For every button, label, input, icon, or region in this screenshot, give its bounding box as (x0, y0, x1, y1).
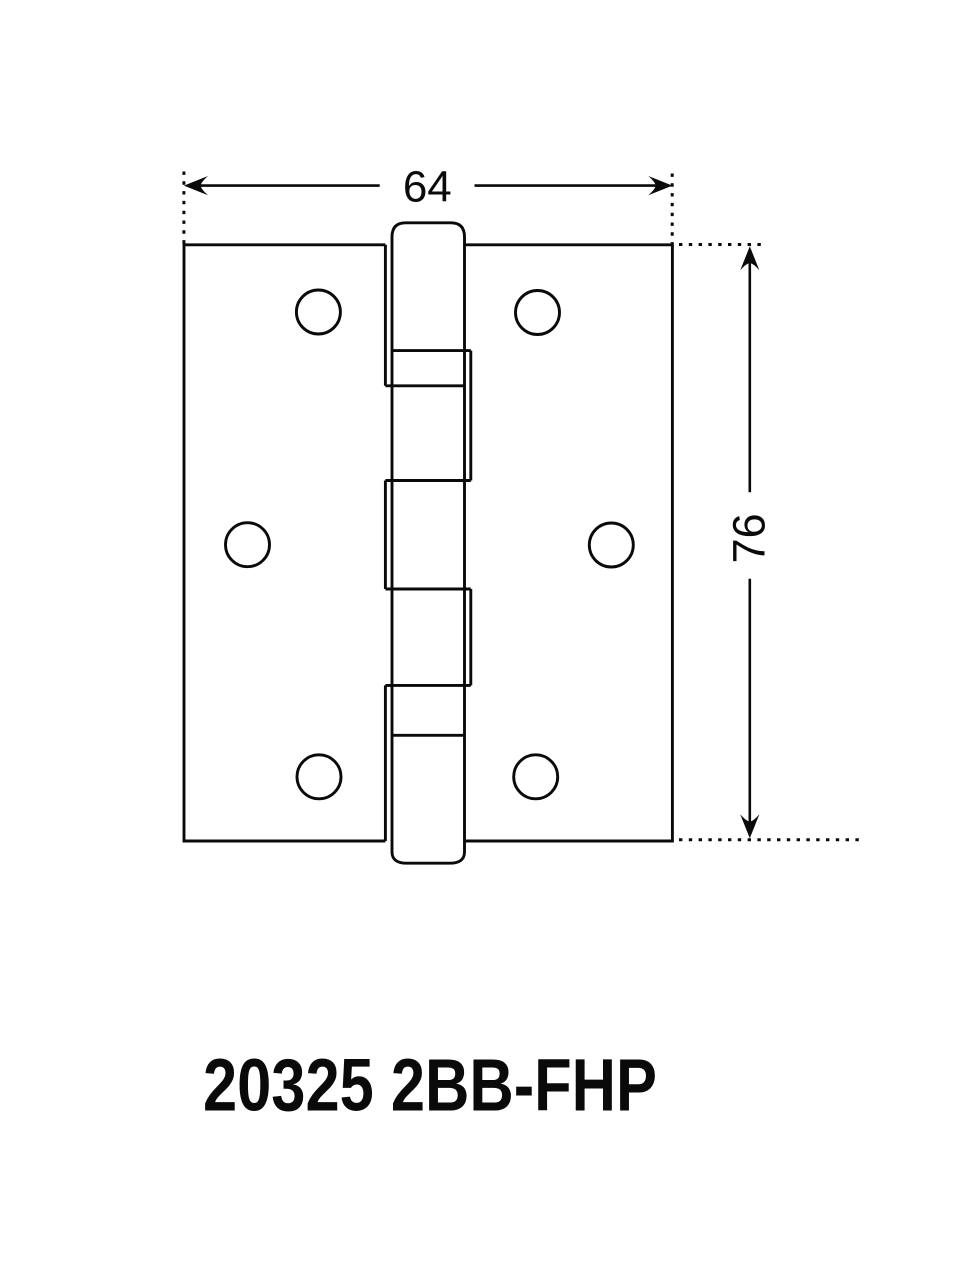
svg-text:76: 76 (724, 513, 775, 563)
svg-text:20325 2BB-FHP: 20325 2BB-FHP (203, 1044, 657, 1127)
svg-text:64: 64 (403, 163, 452, 212)
